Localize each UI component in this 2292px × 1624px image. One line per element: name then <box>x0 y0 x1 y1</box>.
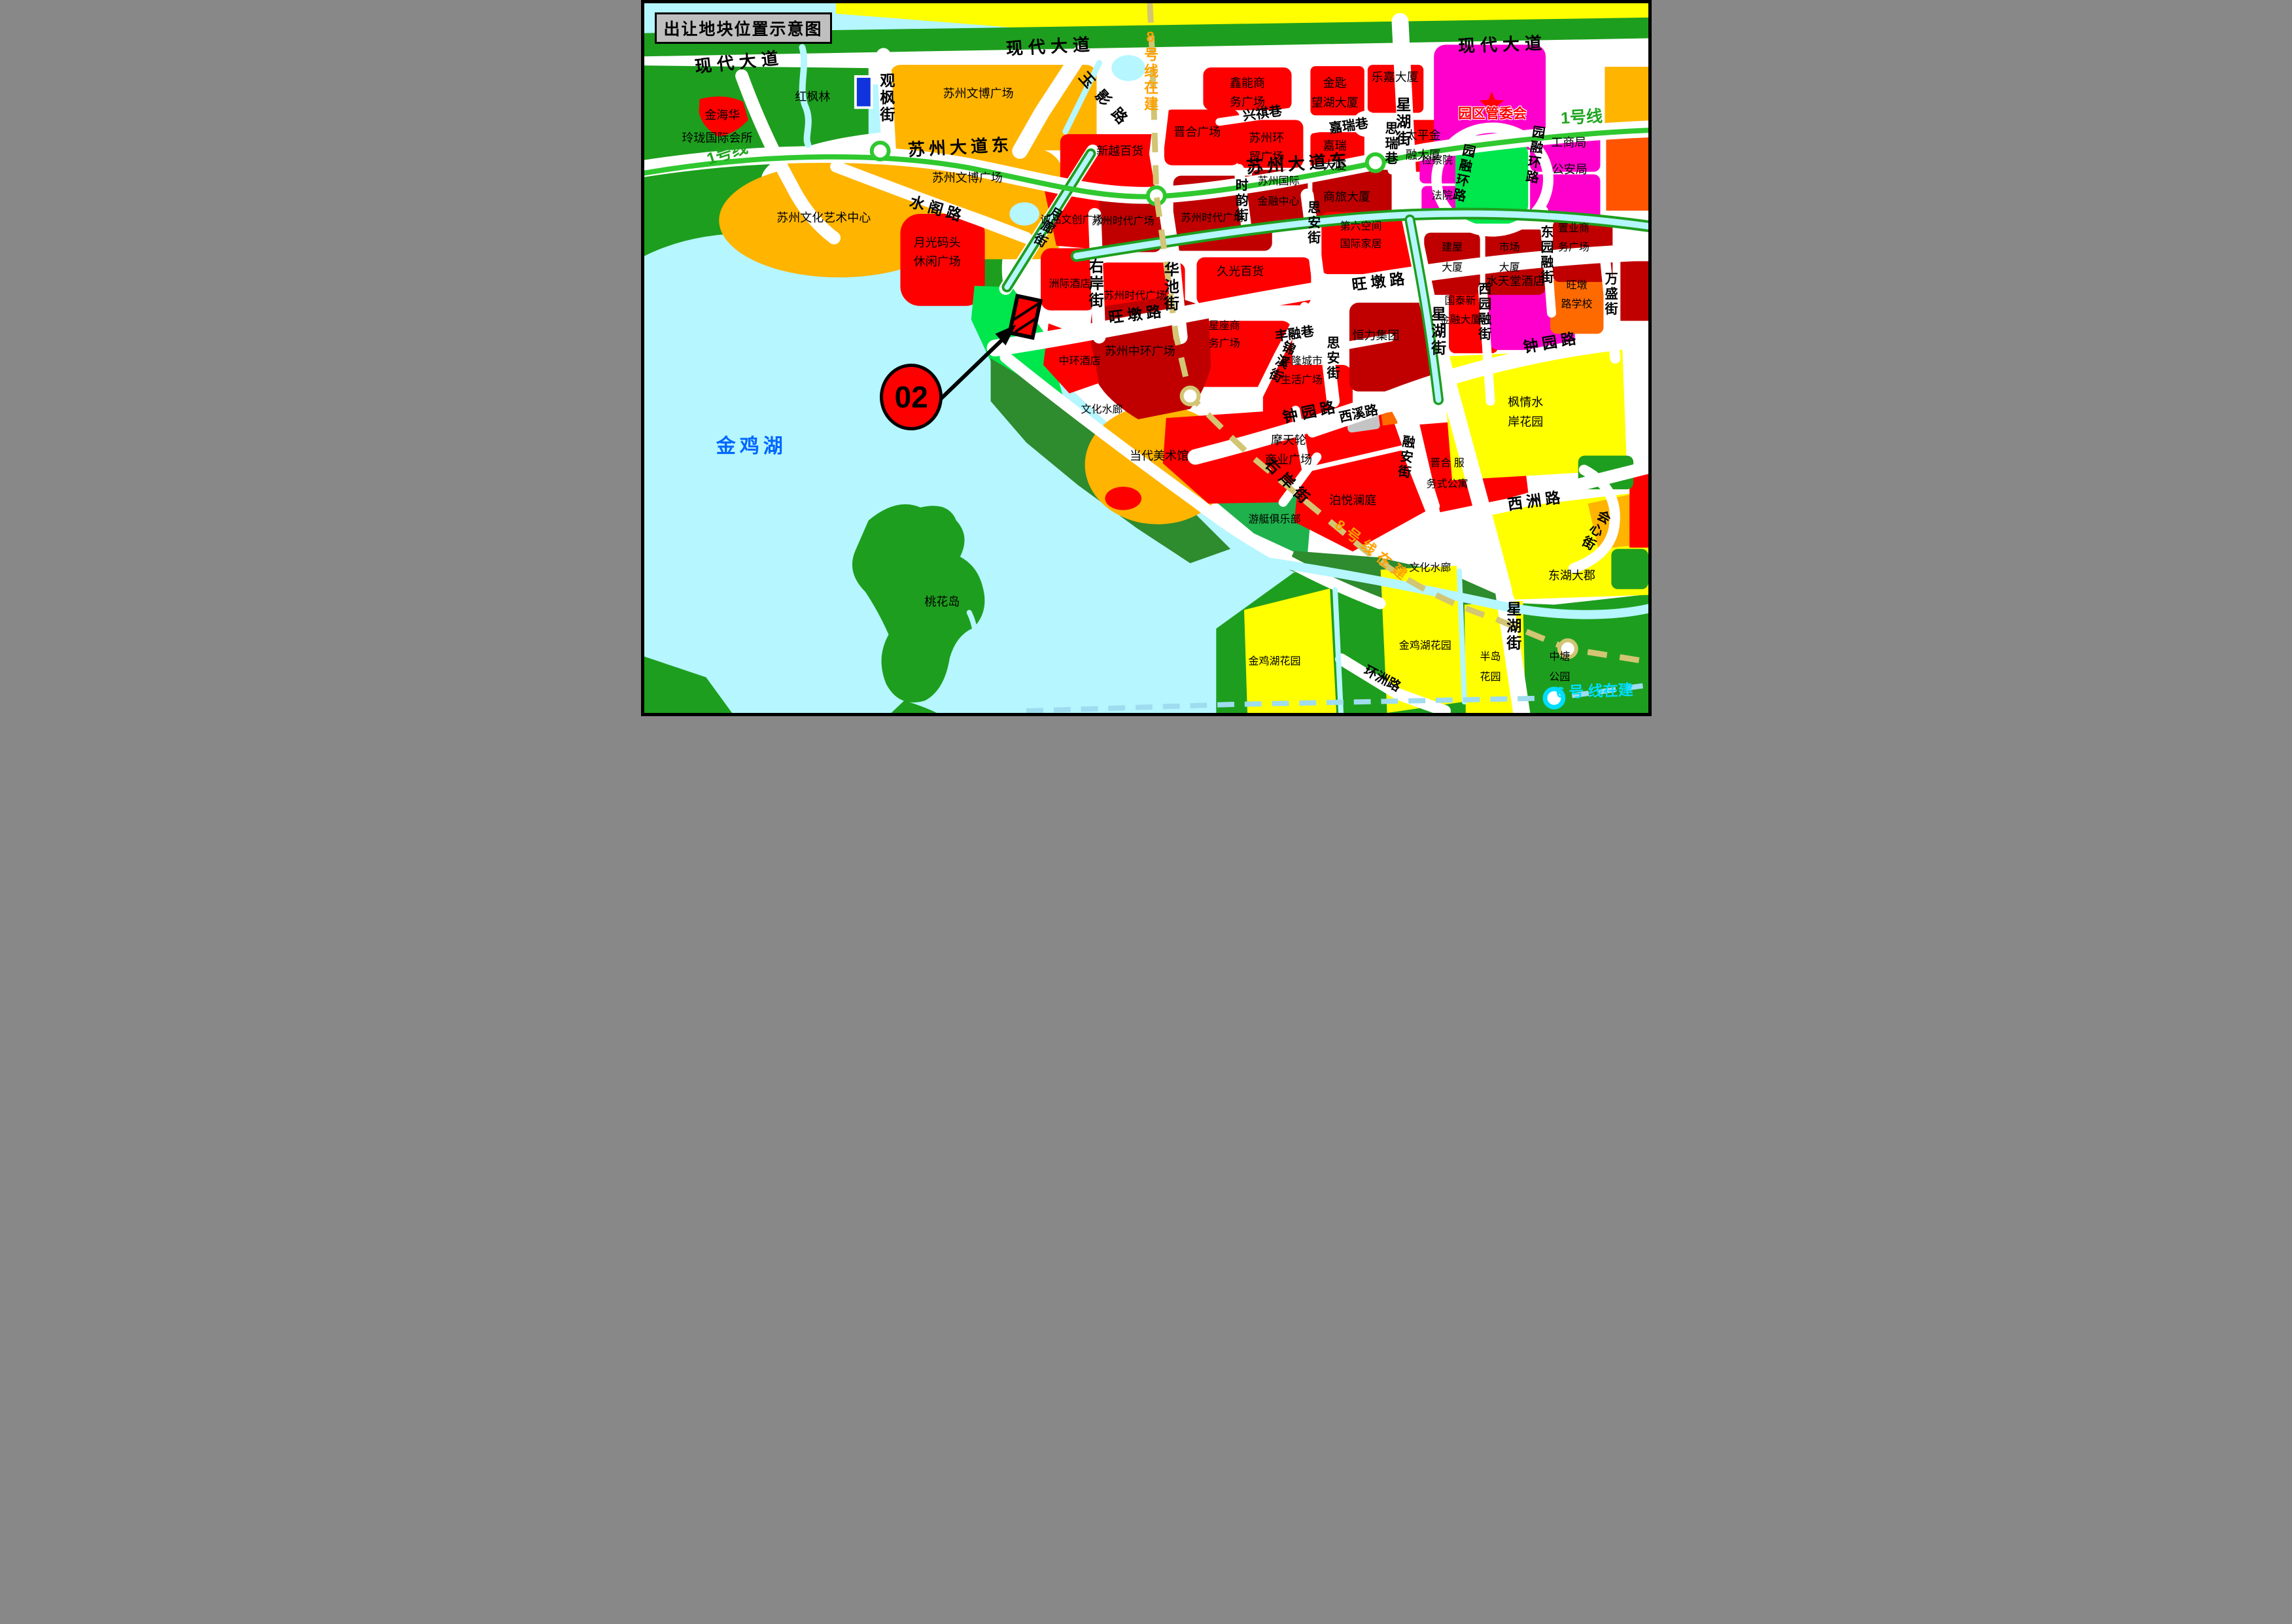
road-shuige-rd: 水阁路 <box>908 194 967 224</box>
area-sifc-2: 金融中心 <box>1258 197 1300 207</box>
road-xiandai-dadao-east: 现代大道 <box>1458 35 1548 55</box>
road-yuanrong-ring-e: 园融环路 <box>1523 124 1544 186</box>
metro-line8-diag: 8号线在建 <box>1332 517 1414 585</box>
area-xinneng-2: 务广场 <box>1230 96 1265 108</box>
area-yacht-club: 游艇俱乐部 <box>1248 515 1300 525</box>
area-guotai-1: 国泰新 <box>1444 296 1476 307</box>
area-culture-corridor-2: 文化水廊 <box>1409 563 1451 574</box>
area-jinhe-apartment-1: 晋合 服 <box>1430 458 1464 469</box>
area-fengqing-2: 岸花园 <box>1508 416 1543 428</box>
area-ferris-wheel-1: 摩天轮 <box>1271 434 1306 446</box>
area-moonlight-wharf-1: 月光码头 <box>914 237 961 249</box>
road-xixi-rd: 西溪路 <box>1338 404 1380 424</box>
road-xiandai-dadao-center: 现代大道 <box>1006 36 1096 58</box>
area-jiuguang-dept: 久光百货 <box>1217 266 1264 277</box>
road-suzhou-ave-east-w: 苏州大道东 <box>907 136 1013 158</box>
area-zhongtang-2: 公园 <box>1549 672 1570 683</box>
area-sixth-space-1: 第六空间 <box>1340 222 1381 232</box>
area-procuratorate: 检察院 <box>1421 156 1453 166</box>
metro-line6: 6 号 线在建 <box>1556 683 1633 700</box>
area-linglong-club: 玲珑国际会所 <box>682 132 753 144</box>
metro-line1-east: 1号线 <box>1561 109 1603 127</box>
area-wenbo-plaza-s: 苏州文博广场 <box>932 172 1003 184</box>
area-huanmao-1: 苏州环 <box>1249 132 1284 144</box>
area-jinshi-2: 望湖大厦 <box>1311 97 1359 109</box>
road-zhongyuan-rd-w: 钟园路 <box>1281 399 1340 426</box>
area-ferris-wheel-2: 商业广场 <box>1265 454 1312 466</box>
road-huixin-st: 会心街 <box>1578 507 1612 553</box>
road-fengrong-lane: 丰融巷 <box>1274 325 1315 343</box>
area-fengqing-1: 枫情水 <box>1508 396 1543 408</box>
land-parcel-location-map: 现代大道现代大道现代大道苏州大道东苏州大道东观枫街玉影路水阁路月廊街右岸街右岸街… <box>641 0 1652 716</box>
area-jianwu-1: 建屋 <box>1442 243 1463 253</box>
area-jinhe-plaza: 晋合广场 <box>1173 126 1221 138</box>
road-xiandai-dadao-west: 现代大道 <box>694 49 784 75</box>
area-lejia-tower: 乐嘉大厦 <box>1372 71 1419 83</box>
parcel-number-badge: 02 <box>880 364 943 430</box>
area-shuitiantang-hotel: 水天堂酒店 <box>1486 275 1545 287</box>
area-times-square-s: 苏州时代广场 <box>1103 291 1166 302</box>
area-boyue-lanting: 泊悦澜庭 <box>1329 494 1376 506</box>
road-huachi-st: 华池街 <box>1162 262 1177 313</box>
area-jinjihu-garden-r: 金鸡湖花园 <box>1399 641 1451 651</box>
area-shichang-2: 大厦 <box>1499 263 1520 273</box>
area-jinjihu-garden-l: 金鸡湖花园 <box>1248 657 1300 667</box>
area-fenglong-2: 生活广场 <box>1281 375 1323 386</box>
road-xiyuanrong-st: 西园融街 <box>1477 282 1490 342</box>
area-zhongtang-1: 中塘 <box>1549 652 1570 663</box>
road-yuanrong-ring-w: 园融环路 <box>1450 143 1475 204</box>
area-jinhaihua: 金海华 <box>704 109 740 121</box>
area-hengli-group: 恒力集团 <box>1353 330 1400 341</box>
area-jiarui-tower-2: 大厦 <box>1323 160 1347 171</box>
road-wangdun-rd-e: 旺墩路 <box>1351 271 1409 293</box>
area-court: 法院 <box>1432 191 1453 201</box>
road-sian-st-s: 思安街 <box>1325 336 1338 381</box>
area-bandao-1: 半岛 <box>1480 652 1501 663</box>
area-fenglong-1: 丰隆城市 <box>1281 356 1323 367</box>
area-wangdun-school-1: 旺墩 <box>1566 281 1587 291</box>
area-culture-art-center: 苏州文化艺术中心 <box>776 212 871 224</box>
lake-jinjihu: 金鸡湖 <box>716 437 787 457</box>
area-bandao-2: 花园 <box>1480 672 1501 683</box>
area-shanglv-tower: 商旅大厦 <box>1323 191 1370 203</box>
road-wansheng-st: 万盛街 <box>1603 271 1616 317</box>
map-title: 出让地块位置示意图 <box>655 12 832 44</box>
area-zhonghuan-hotel: 中环酒店 <box>1059 356 1101 367</box>
area-xingzuo-2: 务广场 <box>1209 339 1240 349</box>
area-taiping-1: 太平金 <box>1406 130 1441 141</box>
area-wangdun-school-2: 路学校 <box>1561 300 1592 310</box>
area-public-security-bureau: 公安局 <box>1552 164 1588 175</box>
area-xinyue-dept: 新越百货 <box>1096 145 1143 157</box>
road-yuelang-st: 月廊街 <box>1030 204 1064 250</box>
area-huanmao-2: 贸广场 <box>1249 151 1284 163</box>
road-sian-st-n: 思安街 <box>1306 201 1319 246</box>
road-wangdun-rd-w: 旺墩路 <box>1108 304 1166 326</box>
area-xinneng-1: 鑫能商 <box>1230 77 1265 89</box>
area-moonlight-wharf-2: 休闲广场 <box>914 256 961 268</box>
area-jiarui-tower-1: 嘉瑞 <box>1323 140 1347 152</box>
road-zhongyuan-rd-e: 钟园路 <box>1522 330 1581 355</box>
area-times-square-e: 苏州时代广场 <box>1181 213 1243 224</box>
road-jiarui-lane: 嘉瑞巷 <box>1328 117 1369 135</box>
road-xinghu-st-bot: 星湖街 <box>1505 601 1520 652</box>
road-huanzhou-rd: 环洲路 <box>1362 664 1402 694</box>
area-shichang-1: 市场 <box>1499 243 1520 253</box>
area-contemporary-art-museum: 当代美术馆 <box>1130 450 1189 462</box>
road-xizhou-rd: 西洲路 <box>1506 489 1565 512</box>
area-zhonghuan-plaza: 苏州中环广场 <box>1105 345 1175 357</box>
area-guotai-2: 金融大厦 <box>1439 315 1481 326</box>
area-jinshi-1: 金匙 <box>1323 77 1347 89</box>
area-jinhe-apartment-2: 务式公寓 <box>1426 479 1468 490</box>
map-labels: 现代大道现代大道现代大道苏州大道东苏州大道东观枫街玉影路水阁路月廊街右岸街右岸街… <box>644 3 1648 713</box>
road-rongan-st: 融安街 <box>1395 434 1414 481</box>
area-zhiye-2: 务广场 <box>1558 243 1589 253</box>
area-jianwu-2: 大厦 <box>1442 263 1463 273</box>
area-hongfenglin: 红枫林 <box>795 91 830 103</box>
area-sixth-space-2: 国际家居 <box>1340 239 1381 250</box>
area-donghu-dajun: 东湖大郡 <box>1548 570 1595 581</box>
road-yuying-rd: 玉影路 <box>1076 69 1136 133</box>
road-guanfeng-st: 观枫街 <box>878 73 894 124</box>
area-sip-admin-committee: 园区管委会 <box>1458 107 1527 121</box>
area-times-square-w: 苏州时代广场 <box>1092 216 1155 227</box>
area-culture-corridor-1: 文化水廊 <box>1081 405 1122 415</box>
area-industry-commerce-bureau: 工商局 <box>1551 137 1586 148</box>
area-intercontinental-hotel: 洲际酒店 <box>1049 279 1090 290</box>
area-taohua-island: 桃花岛 <box>924 596 960 608</box>
area-zhiye-1: 置业商 <box>1558 224 1589 234</box>
area-wenbo-plaza-n: 苏州文博广场 <box>943 88 1014 99</box>
area-sifc-1: 苏州国际 <box>1258 177 1300 187</box>
metro-line8-top: 8号线在建 <box>1143 29 1157 112</box>
area-xingzuo-1: 星座商 <box>1209 321 1240 332</box>
